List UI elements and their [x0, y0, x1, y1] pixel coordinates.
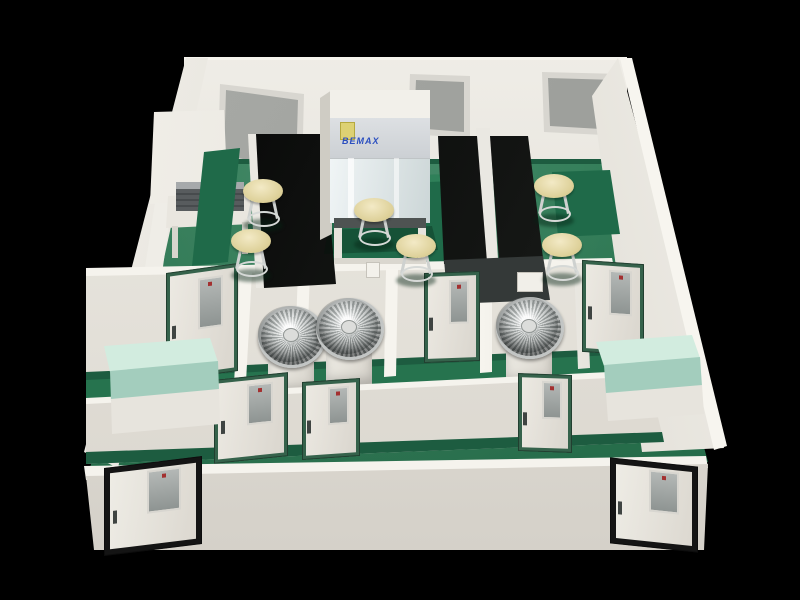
fan-hub — [341, 320, 357, 334]
door-handle — [172, 326, 176, 340]
door-window-sign — [457, 285, 461, 289]
cabinet-brand-label: BEMAX — [342, 136, 422, 150]
door-window — [147, 467, 180, 514]
door-handle — [307, 420, 311, 433]
door-handle — [221, 421, 225, 434]
stool-2 — [229, 229, 273, 287]
stool-3 — [352, 198, 396, 256]
stool-foot-ring — [401, 266, 433, 282]
door-window-sign — [162, 473, 166, 477]
stool-foot-ring — [359, 230, 391, 246]
biosafety-cabinet-top — [330, 90, 430, 120]
door-handle — [429, 318, 433, 331]
door-handle — [588, 306, 592, 319]
stool-foot-ring — [248, 211, 280, 227]
desk-leg-left — [172, 226, 178, 258]
stool-seat — [354, 198, 394, 222]
door-handle — [523, 412, 527, 425]
door-window-sign — [662, 476, 666, 480]
door-handle — [113, 510, 117, 523]
fan-hub — [283, 328, 299, 342]
lab-3d-render: BEMAX — [0, 0, 800, 600]
interior-door-4 — [214, 372, 288, 464]
stool-seat — [534, 174, 574, 198]
door-window-sign — [208, 281, 212, 286]
fan-unit-2 — [314, 292, 382, 390]
stool-seat — [231, 229, 271, 253]
door-window — [247, 381, 273, 425]
stool-4 — [394, 234, 438, 292]
door-window-sign — [550, 386, 554, 390]
door-handle — [618, 501, 622, 514]
interior-door-5 — [302, 378, 360, 460]
stool-foot-ring — [539, 206, 571, 222]
stool-seat — [243, 179, 283, 203]
door-window-sign — [336, 391, 340, 395]
door-window-sign — [258, 387, 262, 391]
fan-hub — [521, 319, 537, 333]
door-window — [328, 386, 349, 426]
interior-door-6 — [518, 373, 572, 453]
stool-5 — [532, 174, 576, 232]
door-window — [609, 270, 632, 316]
stool-seat — [542, 233, 582, 257]
stool-6 — [540, 233, 584, 291]
door-window — [449, 279, 470, 323]
stool-foot-ring — [236, 261, 268, 277]
door-window-sign — [619, 276, 623, 280]
stool-seat — [396, 234, 436, 258]
door-window — [542, 381, 562, 420]
wall-switch-plate — [366, 262, 380, 278]
exterior-door-left — [104, 456, 202, 556]
exterior-door-right — [610, 457, 698, 552]
door-window — [198, 275, 224, 330]
door-window — [649, 469, 679, 514]
stool-foot-ring — [547, 265, 579, 281]
